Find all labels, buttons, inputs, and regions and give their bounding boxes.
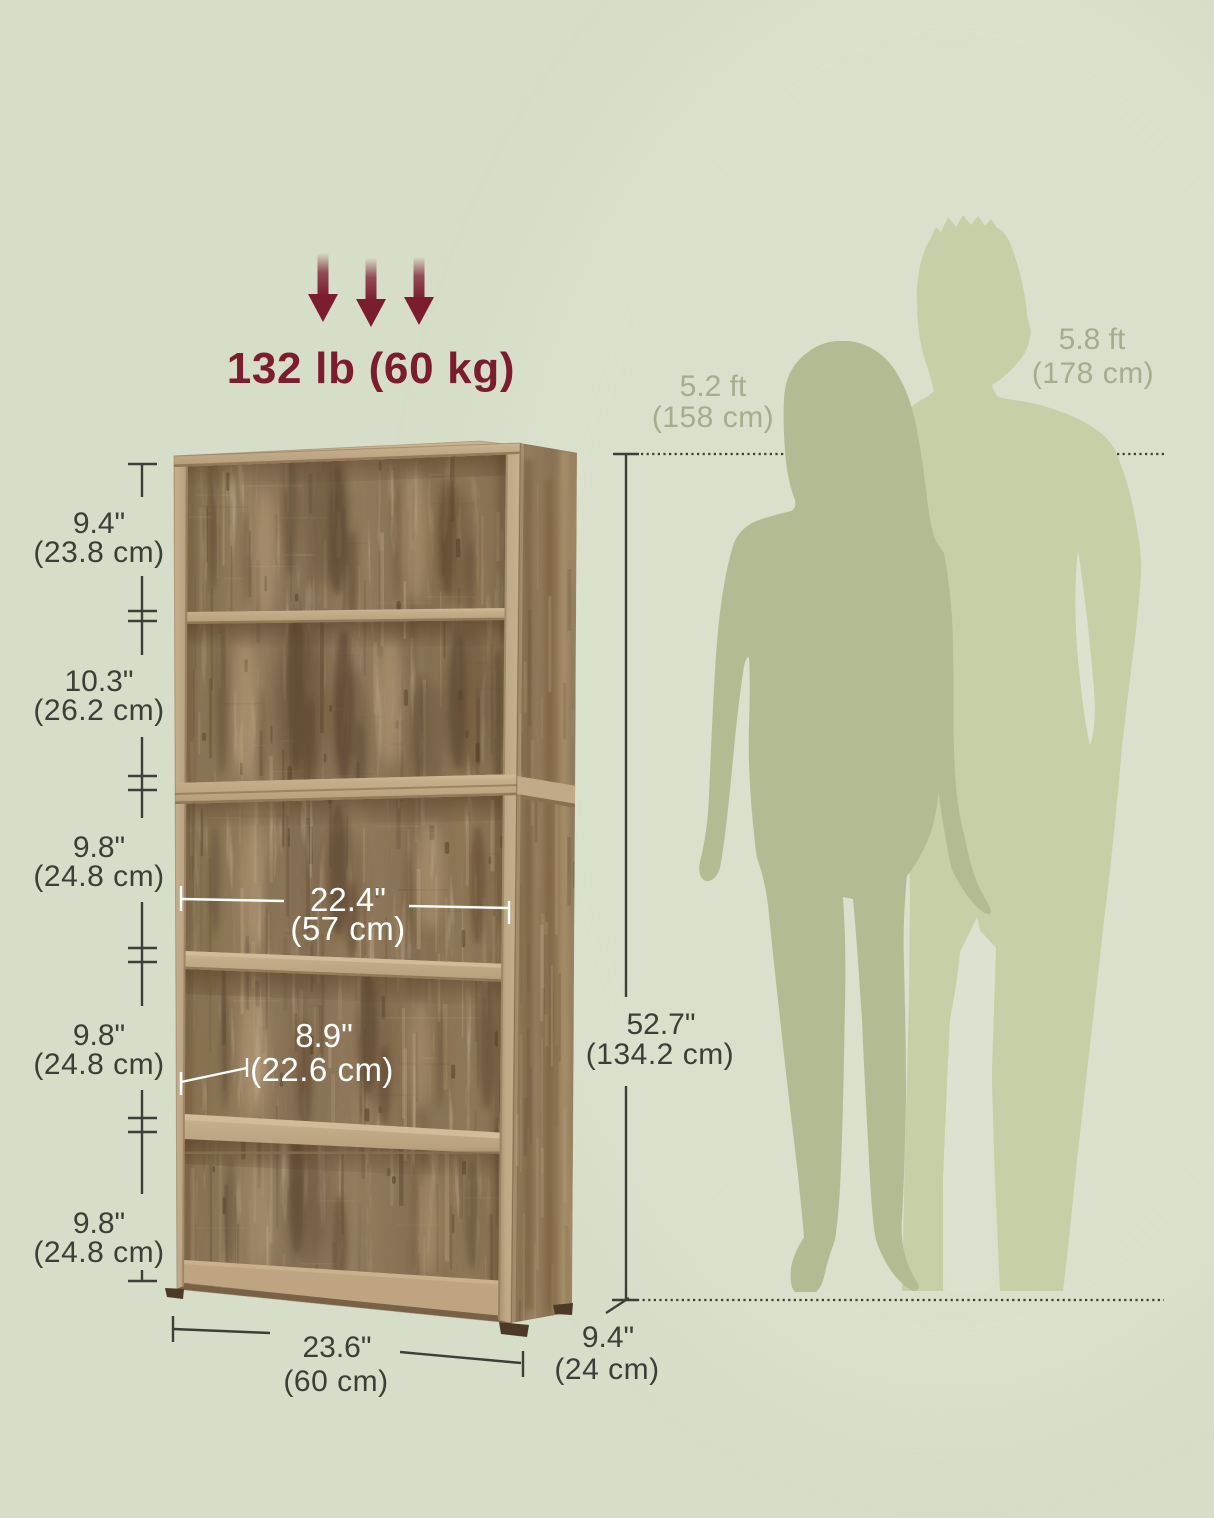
svg-text:(57 cm): (57 cm) — [290, 910, 405, 947]
svg-text:(24.8 cm): (24.8 cm) — [33, 1236, 164, 1269]
svg-text:8.9": 8.9" — [295, 1017, 353, 1054]
svg-text:9.4": 9.4" — [582, 1321, 634, 1354]
svg-text:23.6": 23.6" — [302, 1331, 371, 1364]
svg-text:(158 cm): (158 cm) — [652, 401, 774, 434]
svg-text:(24 cm): (24 cm) — [554, 1353, 659, 1386]
svg-text:52.7": 52.7" — [626, 1008, 695, 1041]
svg-text:(60 cm): (60 cm) — [283, 1365, 388, 1398]
svg-text:(24.8 cm): (24.8 cm) — [33, 1048, 164, 1081]
svg-text:(22.6 cm): (22.6 cm) — [250, 1051, 394, 1088]
svg-text:(24.8 cm): (24.8 cm) — [33, 860, 164, 893]
svg-text:(26.2 cm): (26.2 cm) — [33, 694, 164, 727]
svg-text:5.8 ft: 5.8 ft — [1059, 323, 1126, 356]
svg-text:5.2 ft: 5.2 ft — [680, 370, 747, 403]
svg-text:(178 cm): (178 cm) — [1032, 357, 1154, 390]
svg-text:(23.8 cm): (23.8 cm) — [33, 536, 164, 569]
svg-text:132 lb (60 kg): 132 lb (60 kg) — [227, 344, 516, 393]
svg-text:(134.2 cm): (134.2 cm) — [586, 1038, 734, 1071]
